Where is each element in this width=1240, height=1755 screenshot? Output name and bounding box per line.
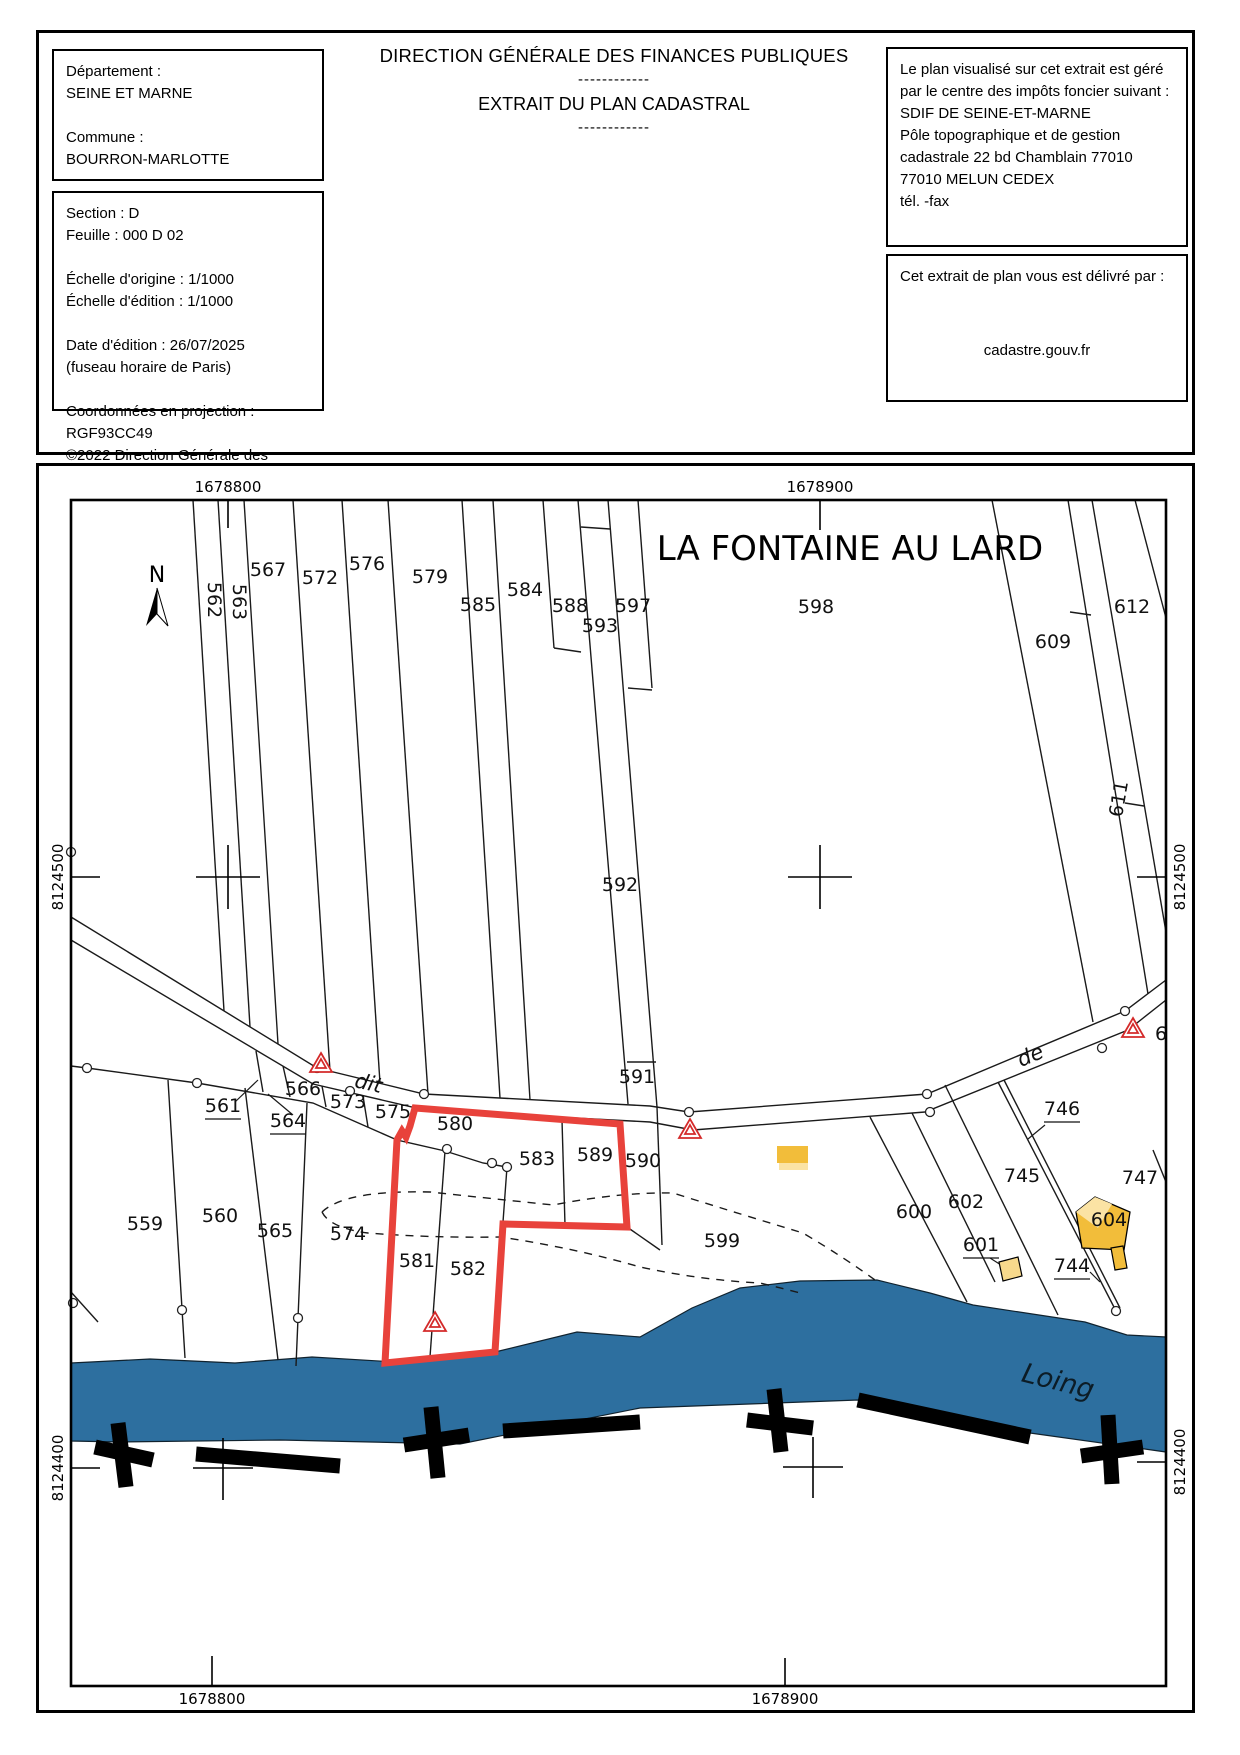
north-arrow-icon: N [146,563,168,626]
coord-x-bottom-right: 1678900 [752,1690,819,1708]
edition-date-line: Date d'édition : 26/07/2025 [66,335,310,357]
parcel-label-565: 565 [257,1220,293,1242]
timezone-line: (fuseau horaire de Paris) [66,357,310,379]
parcel-label-564: 564 [270,1110,306,1132]
parcel-label-6: 6 [1155,1023,1167,1045]
parcel-label-580: 580 [437,1113,473,1135]
sheet-info-box: Section : D Feuille : 000 D 02 Échelle d… [52,191,324,411]
parcel-label-601: 601 [963,1234,999,1256]
manager-line: tél. -fax [900,191,1174,213]
parcel-label-582: 582 [450,1258,486,1280]
section-line: Section : D [66,203,310,225]
parcel-label-592: 592 [602,874,638,896]
header-section: Département : SEINE ET MARNE Commune : B… [36,30,1195,455]
parcel-label-604: 604 [1091,1209,1127,1231]
parcel-label-612: 612 [1114,596,1150,618]
parcel-label-590: 590 [625,1150,661,1172]
parcel-label-597: 597 [615,595,651,617]
parcel-label-561: 561 [205,1095,241,1117]
scale-edition-line: Échelle d'édition : 1/1000 [66,291,310,313]
map-section: 1678800 1678900 1678800 1678900 8124500 … [36,463,1195,1713]
coord-x-top-right: 1678900 [787,478,854,496]
parcel-label-591: 591 [619,1066,655,1088]
org-title: DIRECTION GÉNÉRALE DES FINANCES PUBLIQUE… [339,45,889,67]
parcel-label-563: 563 [228,584,250,620]
divider-dashes: ------------ [339,71,889,88]
cadastral-extract-page: Département : SEINE ET MARNE Commune : B… [0,0,1240,1755]
coord-y-left-upper: 8124500 [49,844,67,911]
parcel-label-589: 589 [577,1144,613,1166]
parcel-label-602: 602 [948,1191,984,1213]
parcel-label-559: 559 [127,1213,163,1235]
manager-line: Pôle topographique et de gestion [900,125,1174,147]
coord-y-left-lower: 8124400 [49,1435,67,1502]
divider-dashes: ------------ [339,119,889,136]
coord-x-top-left: 1678800 [195,478,262,496]
commune-label: Commune : [66,127,310,149]
parcel-labels: 5625635675725765795855845885935975986096… [127,553,1167,1280]
parcel-label-581: 581 [399,1250,435,1272]
parcel-label-573: 573 [330,1091,366,1113]
doc-title: EXTRAIT DU PLAN CADASTRAL [339,94,889,115]
scale-origin-line: Échelle d'origine : 1/1000 [66,269,310,291]
parcel-label-575: 575 [375,1101,411,1123]
parcel-label-598: 598 [798,596,834,618]
parcel-label-599: 599 [704,1230,740,1252]
parcel-label-584: 584 [507,579,543,601]
map-frame [71,500,1166,1686]
parcel-label-747: 747 [1122,1167,1158,1189]
manager-line: SDIF DE SEINE-ET-MARNE [900,103,1174,125]
parcel-label-579: 579 [412,566,448,588]
title-block: DIRECTION GÉNÉRALE DES FINANCES PUBLIQUE… [339,45,889,136]
parcel-label-744: 744 [1054,1255,1090,1277]
projection-line: Coordonnées en projection : RGF93CC49 [66,401,310,445]
place-name: LA FONTAINE AU LARD [657,529,1043,569]
cadastral-map: 1678800 1678900 1678800 1678900 8124500 … [39,466,1192,1710]
feuille-line: Feuille : 000 D 02 [66,225,310,247]
coordinate-labels: 1678800 1678900 1678800 1678900 8124500 … [49,478,1189,1708]
department-label: Département : [66,61,310,83]
parcel-label-588: 588 [552,595,588,617]
parcel-label-566: 566 [285,1078,321,1100]
manager-line: Le plan visualisé sur cet extrait est gé… [900,59,1174,81]
manager-line: cadastrale 22 bd Chamblain 77010 [900,147,1174,169]
parcel-label-600: 600 [896,1201,932,1223]
parcel-label-609: 609 [1035,631,1071,653]
tax-center-box: Le plan visualisé sur cet extrait est gé… [886,47,1188,247]
coord-y-right-upper: 8124500 [1171,844,1189,911]
building [999,1257,1022,1281]
north-label: N [149,563,165,588]
delivery-box: Cet extrait de plan vous est délivré par… [886,254,1188,402]
building [779,1163,808,1170]
delivery-intro: Cet extrait de plan vous est délivré par… [900,266,1174,288]
parcel-label-585: 585 [460,594,496,616]
commune-value: BOURRON-MARLOTTE [66,149,310,171]
parcel-label-583: 583 [519,1148,555,1170]
department-value: SEINE ET MARNE [66,83,310,105]
manager-line: par le centre des impôts foncier suivant… [900,81,1174,103]
parcel-label-562: 562 [203,582,225,618]
parcel-lines [71,500,1166,1366]
provider-name: cadastre.gouv.fr [900,340,1174,362]
parcel-label-567: 567 [250,559,286,581]
parcel-label-746: 746 [1044,1098,1080,1120]
graticule-ticks [71,500,1166,1686]
parcel-label-574: 574 [330,1223,366,1245]
parcel-label-611: 611 [1105,779,1133,819]
coord-y-right-lower: 8124400 [1171,1429,1189,1496]
parcel-label-560: 560 [202,1205,238,1227]
dashed-terrain-lines [322,1192,875,1293]
building [777,1146,808,1163]
parcel-label-593: 593 [582,615,618,637]
department-commune-box: Département : SEINE ET MARNE Commune : B… [52,49,324,181]
parcel-label-576: 576 [349,553,385,575]
parcel-label-572: 572 [302,567,338,589]
manager-line: 77010 MELUN CEDEX [900,169,1174,191]
road-label-de: de [1013,1039,1047,1071]
parcel-label-745: 745 [1004,1165,1040,1187]
coord-x-bottom-left: 1678800 [179,1690,246,1708]
